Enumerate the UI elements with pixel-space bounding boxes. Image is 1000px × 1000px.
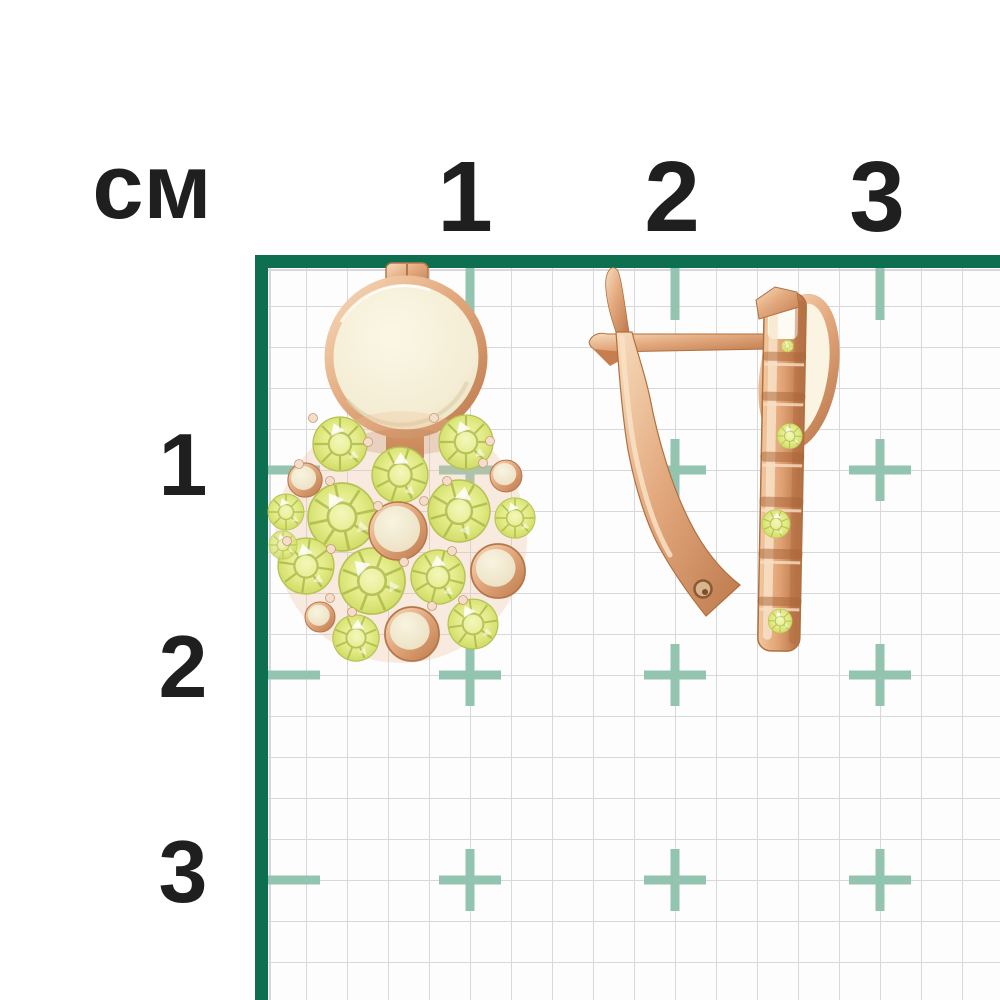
hook-hole-shadow [702,589,708,595]
gem-cluster [268,411,535,668]
english-lock-hook [616,332,740,616]
hook-top-wire [606,268,629,332]
earrings-photo [0,0,1000,1000]
hook-hole [695,581,712,598]
gem-column [755,293,807,652]
earring-front-view [268,263,535,668]
polished-disc [329,280,483,434]
earring-side-view [589,268,844,652]
measurement-photo-canvas: см 1 2 3 1 2 3 [0,0,1000,1000]
